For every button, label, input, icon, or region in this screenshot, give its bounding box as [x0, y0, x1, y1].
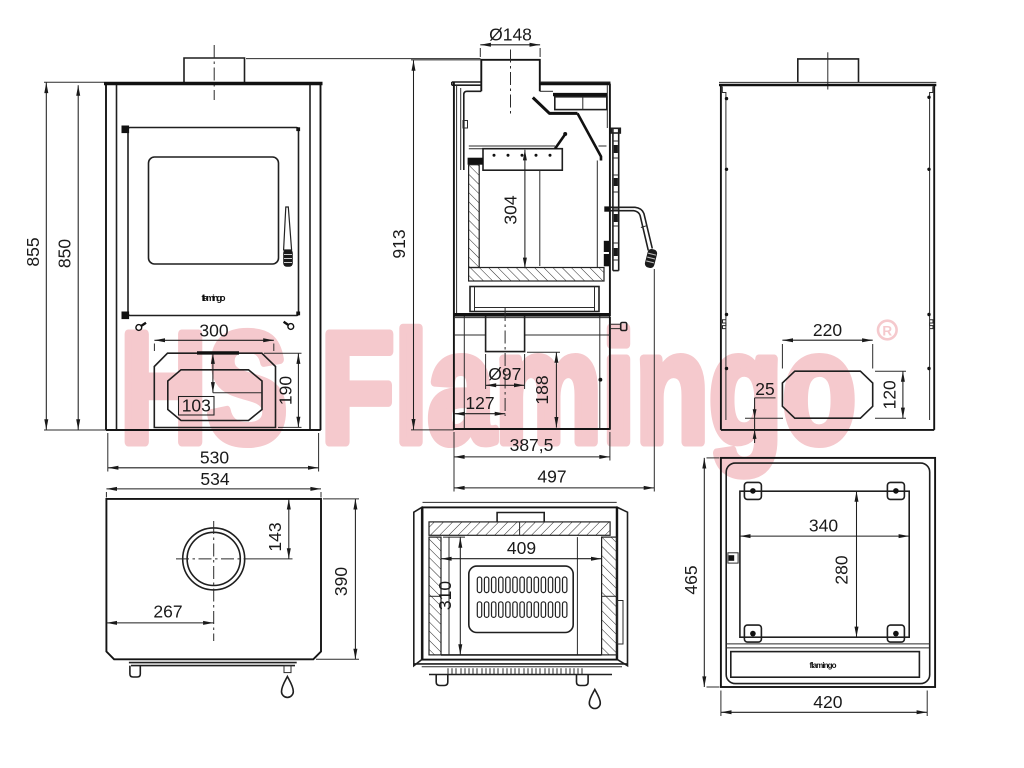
svg-text:420: 420: [813, 692, 842, 712]
svg-text:flamingo: flamingo: [202, 293, 227, 303]
svg-text:Ø148: Ø148: [489, 25, 532, 45]
svg-text:300: 300: [199, 321, 228, 341]
svg-text:190: 190: [276, 376, 296, 405]
svg-text:304: 304: [500, 195, 520, 224]
svg-text:25: 25: [755, 379, 774, 399]
svg-text:120: 120: [879, 380, 899, 409]
svg-text:340: 340: [809, 515, 838, 535]
svg-text:409: 409: [507, 538, 536, 558]
svg-text:465: 465: [681, 565, 701, 594]
svg-text:855: 855: [23, 237, 43, 266]
svg-text:280: 280: [832, 555, 852, 584]
svg-text:143: 143: [265, 522, 285, 551]
svg-text:Ø97: Ø97: [488, 364, 521, 384]
svg-text:127: 127: [465, 393, 494, 413]
svg-text:850: 850: [54, 239, 74, 268]
svg-text:497: 497: [537, 466, 566, 486]
svg-text:103: 103: [182, 396, 211, 416]
svg-text:188: 188: [532, 375, 552, 404]
svg-text:flamingo: flamingo: [810, 661, 837, 670]
svg-text:530: 530: [200, 448, 229, 468]
svg-text:390: 390: [331, 567, 351, 596]
svg-text:R: R: [882, 324, 892, 339]
svg-text:HS Flamingo: HS Flamingo: [120, 301, 856, 476]
svg-text:267: 267: [153, 601, 182, 621]
svg-text:387,5: 387,5: [510, 435, 554, 455]
svg-text:534: 534: [200, 469, 229, 489]
svg-text:220: 220: [813, 320, 842, 340]
svg-text:310: 310: [435, 581, 455, 610]
svg-text:913: 913: [389, 229, 409, 258]
